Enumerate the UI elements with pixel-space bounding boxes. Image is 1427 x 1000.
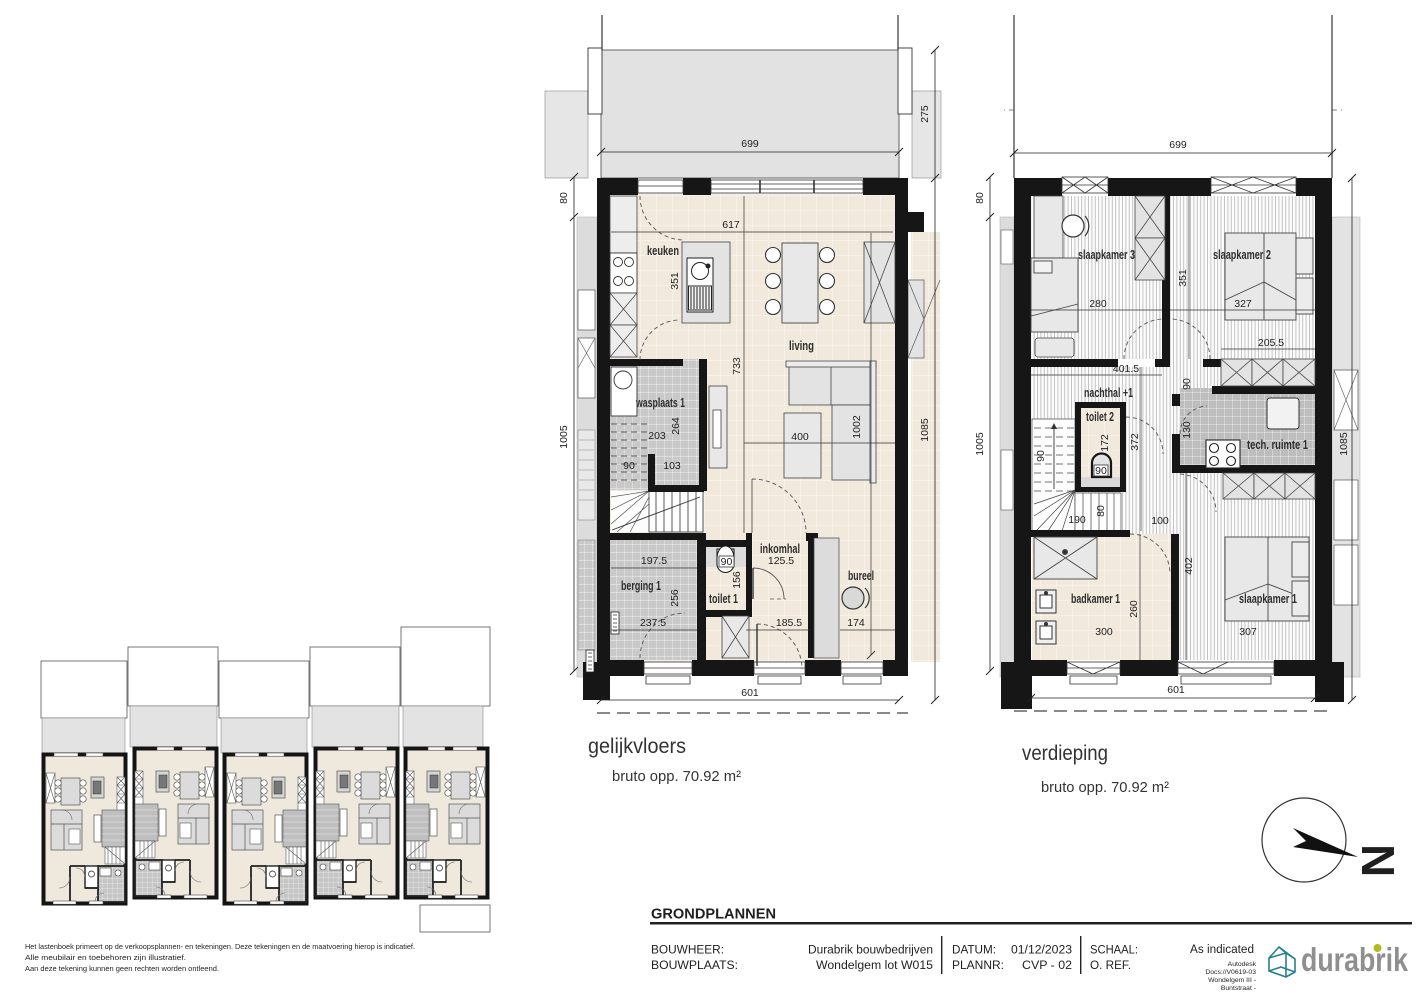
svg-text:256: 256	[669, 589, 681, 607]
svg-text:berging 1: berging 1	[621, 578, 661, 593]
svg-text:bureel: bureel	[848, 568, 874, 583]
svg-text:nachthal +1: nachthal +1	[1084, 385, 1133, 400]
svg-text:gelijkvloers: gelijkvloers	[588, 735, 686, 758]
svg-text:1002: 1002	[851, 415, 863, 439]
svg-text:keuken: keuken	[647, 243, 679, 258]
svg-text:GRONDPLANNEN: GRONDPLANNEN	[651, 907, 776, 923]
svg-text:300: 300	[1095, 626, 1113, 638]
svg-text:slaapkamer 2: slaapkamer 2	[1213, 247, 1271, 262]
svg-text:PLANNR:: PLANNR:	[952, 958, 1004, 972]
svg-text:toilet 2: toilet 2	[1086, 409, 1114, 424]
svg-text:Docs://V0619-03: Docs://V0619-03	[1205, 969, 1256, 976]
svg-text:tech. ruimte 1: tech. ruimte 1	[1247, 437, 1308, 452]
svg-text:205.5: 205.5	[1258, 337, 1284, 349]
svg-text:Wondelgem III -: Wondelgem III -	[1208, 977, 1256, 984]
svg-text:203: 203	[648, 430, 666, 442]
svg-text:130: 130	[1181, 421, 1193, 439]
svg-text:260: 260	[1128, 600, 1140, 618]
svg-text:617: 617	[722, 219, 740, 231]
svg-text:DATUM:: DATUM:	[952, 943, 996, 957]
svg-text:Wondelgem lot W015: Wondelgem lot W015	[816, 958, 933, 972]
svg-text:Buntstraat -: Buntstraat -	[1221, 985, 1256, 992]
svg-text:CVP - 02: CVP - 02	[1022, 958, 1072, 972]
svg-text:174: 174	[847, 617, 865, 629]
svg-text:125.5: 125.5	[768, 555, 794, 567]
svg-text:90: 90	[623, 460, 635, 472]
svg-text:inkomhal: inkomhal	[760, 541, 800, 556]
svg-text:toilet 1: toilet 1	[709, 591, 738, 606]
svg-text:bruto opp. 70.92 m²: bruto opp. 70.92 m²	[612, 768, 741, 785]
svg-text:601: 601	[1167, 684, 1185, 696]
svg-text:699: 699	[741, 138, 759, 150]
svg-text:Durabrik bouwbedrijven: Durabrik bouwbedrijven	[808, 943, 933, 957]
svg-text:699: 699	[1169, 139, 1187, 151]
svg-text:601: 601	[741, 687, 759, 699]
svg-text:100: 100	[1151, 515, 1169, 527]
svg-text:80: 80	[974, 192, 986, 204]
svg-text:living: living	[789, 338, 814, 353]
svg-text:Autodesk: Autodesk	[1228, 961, 1257, 968]
svg-text:As indicated: As indicated	[1190, 942, 1254, 956]
svg-text:401.5: 401.5	[1113, 363, 1139, 375]
svg-text:01/12/2023: 01/12/2023	[1011, 943, 1072, 957]
svg-text:slaapkamer 3: slaapkamer 3	[1078, 247, 1135, 262]
svg-text:172: 172	[1099, 434, 1111, 452]
svg-text:351: 351	[1177, 269, 1189, 287]
svg-text:80: 80	[558, 192, 570, 204]
svg-text:durabrik: durabrik	[1301, 941, 1409, 978]
svg-text:237.5: 237.5	[640, 617, 666, 629]
svg-text:1005: 1005	[558, 425, 570, 449]
svg-text:BOUWPLAATS:: BOUWPLAATS:	[651, 958, 738, 972]
svg-text:verdieping: verdieping	[1022, 742, 1108, 765]
svg-text:BOUWHEER:: BOUWHEER:	[651, 943, 724, 957]
svg-text:1085: 1085	[919, 418, 931, 442]
svg-text:wasplaats 1: wasplaats 1	[635, 395, 685, 410]
svg-text:264: 264	[670, 417, 682, 435]
svg-text:Aan deze tekening kunnen geen: Aan deze tekening kunnen geen rechten wo…	[25, 964, 219, 973]
svg-text:N: N	[1352, 844, 1404, 877]
svg-text:103: 103	[663, 460, 681, 472]
svg-text:400: 400	[791, 431, 809, 443]
svg-text:197.5: 197.5	[641, 555, 667, 567]
svg-text:190: 190	[1068, 514, 1086, 526]
svg-text:90: 90	[1181, 378, 1193, 390]
svg-text:O. REF.: O. REF.	[1090, 958, 1131, 972]
svg-text:402: 402	[1183, 557, 1195, 575]
svg-text:SCHAAL:: SCHAAL:	[1090, 943, 1138, 957]
svg-text:bruto opp. 70.92 m²: bruto opp. 70.92 m²	[1041, 779, 1169, 796]
svg-text:307: 307	[1239, 626, 1257, 638]
svg-text:372: 372	[1129, 433, 1141, 451]
svg-text:1005: 1005	[974, 432, 986, 456]
svg-text:156: 156	[731, 571, 743, 589]
svg-text:badkamer 1: badkamer 1	[1071, 591, 1120, 606]
svg-text:Alle meubilair en toebehoren z: Alle meubilair en toebehoren zijn illust…	[25, 953, 186, 962]
svg-text:slaapkamer 1: slaapkamer 1	[1239, 591, 1297, 606]
svg-text:733: 733	[731, 357, 743, 375]
svg-text:275: 275	[919, 105, 931, 123]
svg-text:80: 80	[1095, 505, 1107, 517]
svg-text:90: 90	[1095, 465, 1107, 477]
svg-text:90: 90	[721, 556, 733, 568]
svg-text:185.5: 185.5	[776, 617, 802, 629]
svg-text:Het lastenboek primeert op de: Het lastenboek primeert op de verkoopspl…	[25, 942, 415, 951]
svg-text:351: 351	[669, 272, 681, 290]
svg-text:90: 90	[1035, 450, 1047, 462]
svg-text:280: 280	[1089, 298, 1107, 310]
svg-text:327: 327	[1234, 298, 1252, 310]
svg-text:1085: 1085	[1338, 432, 1350, 456]
